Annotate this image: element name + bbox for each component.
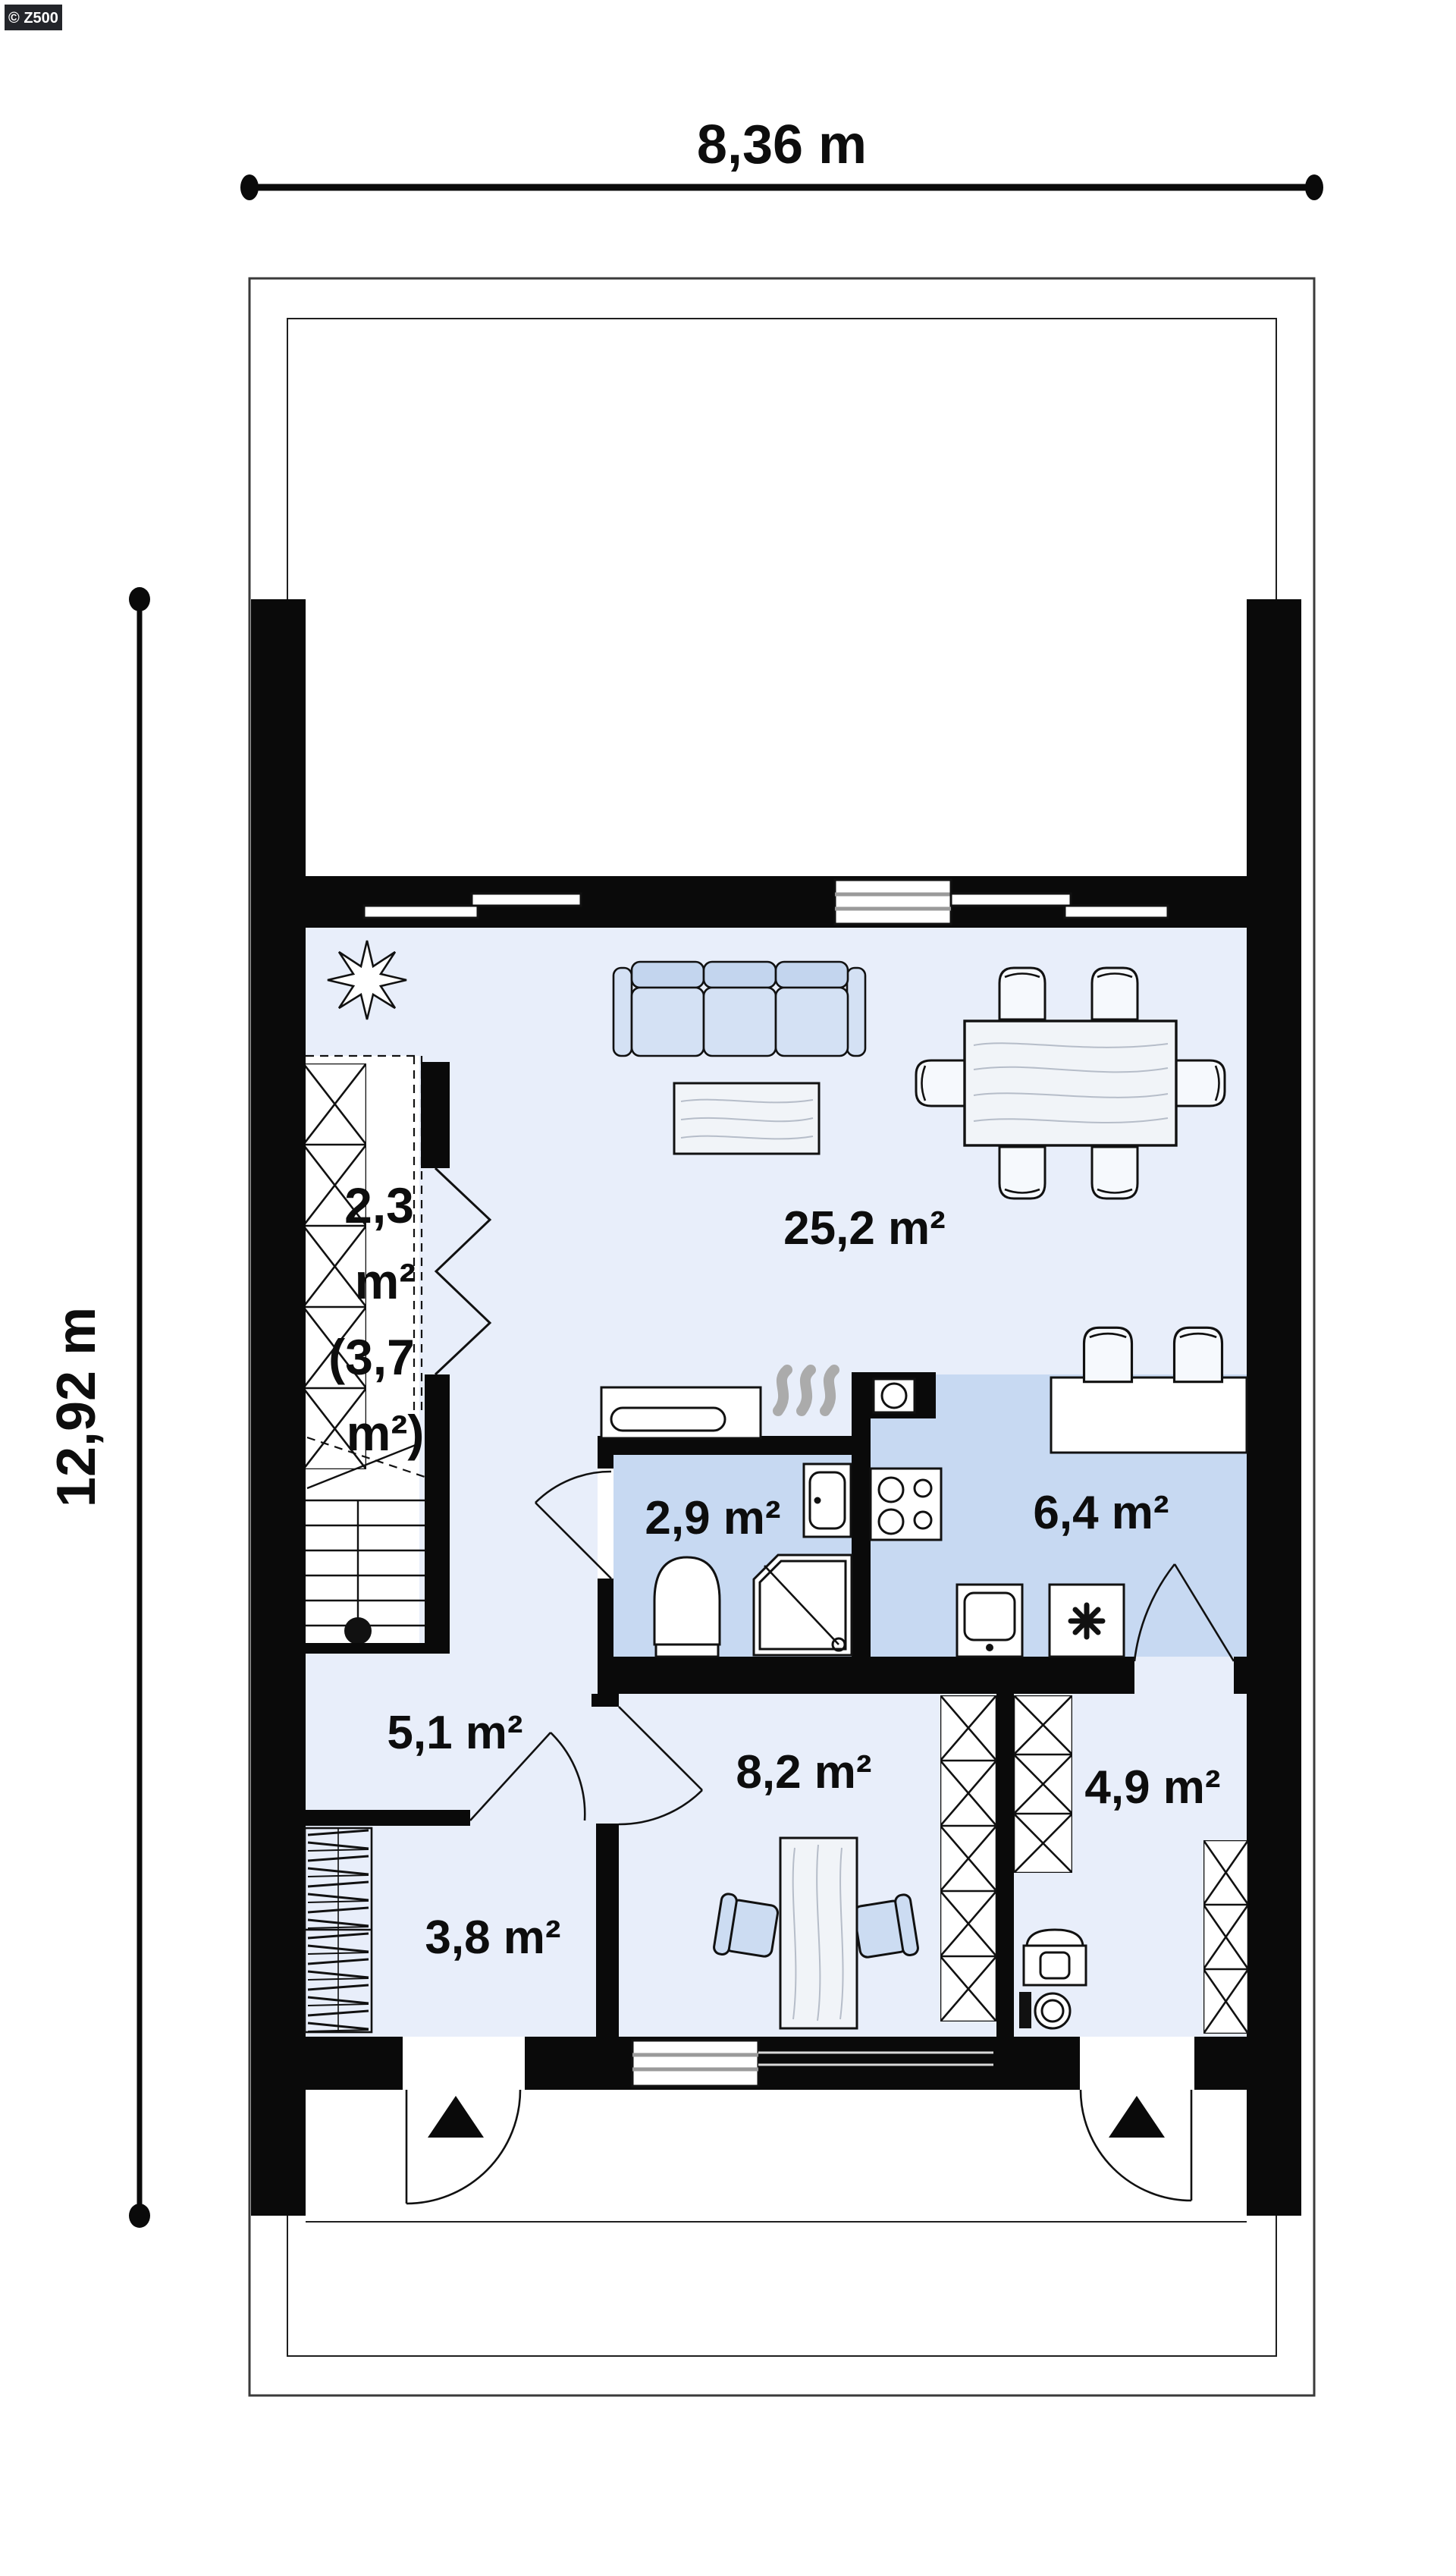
dimension-height: 12,92 m xyxy=(46,587,150,2228)
dining-chair xyxy=(999,968,1045,1019)
doorway-bathroom xyxy=(598,1469,613,1579)
wardrobe-cell xyxy=(940,1695,996,1761)
wall-stub-stairs-top xyxy=(421,1062,450,1168)
hall-label: 5,1 m² xyxy=(387,1707,522,1759)
stove-icon xyxy=(871,1469,941,1540)
wall-bath-kitchen-divider xyxy=(852,1418,871,1694)
entry-arrow-icon xyxy=(428,2096,484,2138)
oven-icon xyxy=(874,1379,915,1412)
dimension-height-label: 12,92 m xyxy=(46,1307,107,1507)
doorway-kitchen xyxy=(1134,1657,1234,1694)
stairs-wardrobe-cell xyxy=(303,1063,366,1145)
sun-icon xyxy=(328,941,406,1019)
door-entry-left xyxy=(406,2090,520,2204)
wall-west xyxy=(251,599,306,2216)
wall-office-entry xyxy=(996,1694,1014,2037)
svg-text:(3,7: (3,7 xyxy=(328,1329,415,1385)
shower-icon xyxy=(754,1555,852,1655)
entry-arrow-icon xyxy=(1109,2096,1165,2138)
dishwasher-icon xyxy=(1050,1585,1124,1657)
window-north-middle xyxy=(835,880,951,924)
radiator-icon xyxy=(305,1828,372,2032)
floorplan-page: 25,2 m² 6,4 m² 2,9 m² 5,1 m² 8,2 m² 4,9 … xyxy=(0,0,1456,2576)
coffee-table xyxy=(674,1083,819,1154)
kitchen-sink-icon xyxy=(957,1585,1022,1657)
wall-hall-office xyxy=(596,1824,619,2037)
kitchen-worktop-sink xyxy=(611,1408,725,1431)
dimension-width: 8,36 m xyxy=(240,115,1323,200)
wall-stub-stairs-bottom xyxy=(425,1374,450,1654)
office-label: 8,2 m² xyxy=(736,1746,871,1798)
toilet-icon xyxy=(654,1557,720,1657)
dimension-width-label: 8,36 m xyxy=(697,115,867,175)
sofa xyxy=(613,962,865,1056)
wall-north xyxy=(306,876,1247,928)
copyright-badge: © Z500 xyxy=(5,5,62,30)
bar-stool xyxy=(1084,1327,1132,1381)
kitchen-label: 6,4 m² xyxy=(1033,1487,1169,1539)
living-room-label: 25,2 m² xyxy=(783,1202,946,1255)
doorway-entry-left xyxy=(403,2037,525,2090)
stair-newel-dot xyxy=(344,1617,372,1645)
svg-text:m²: m² xyxy=(355,1253,416,1309)
copyright-label: © Z500 xyxy=(8,10,58,27)
bar-stool xyxy=(1175,1327,1222,1381)
svg-text:2,3: 2,3 xyxy=(344,1177,414,1233)
floorplan-canvas: 25,2 m² 6,4 m² 2,9 m² 5,1 m² 8,2 m² 4,9 … xyxy=(0,0,1456,2576)
doorway-storage xyxy=(470,1810,595,1826)
wall-hall-storage xyxy=(306,1810,470,1826)
doorway-entry-right xyxy=(1080,2037,1194,2090)
entry-label: 4,9 m² xyxy=(1084,1761,1220,1814)
gas-flames-icon xyxy=(778,1370,834,1411)
bathroom-label: 2,9 m² xyxy=(645,1492,780,1544)
svg-text:m²): m²) xyxy=(347,1405,425,1461)
storage-label: 3,8 m² xyxy=(425,1912,560,1964)
wall-east xyxy=(1247,599,1301,2216)
dining-table xyxy=(965,1021,1176,1145)
washbasin-icon xyxy=(804,1464,851,1537)
bar-counter xyxy=(1051,1378,1247,1453)
